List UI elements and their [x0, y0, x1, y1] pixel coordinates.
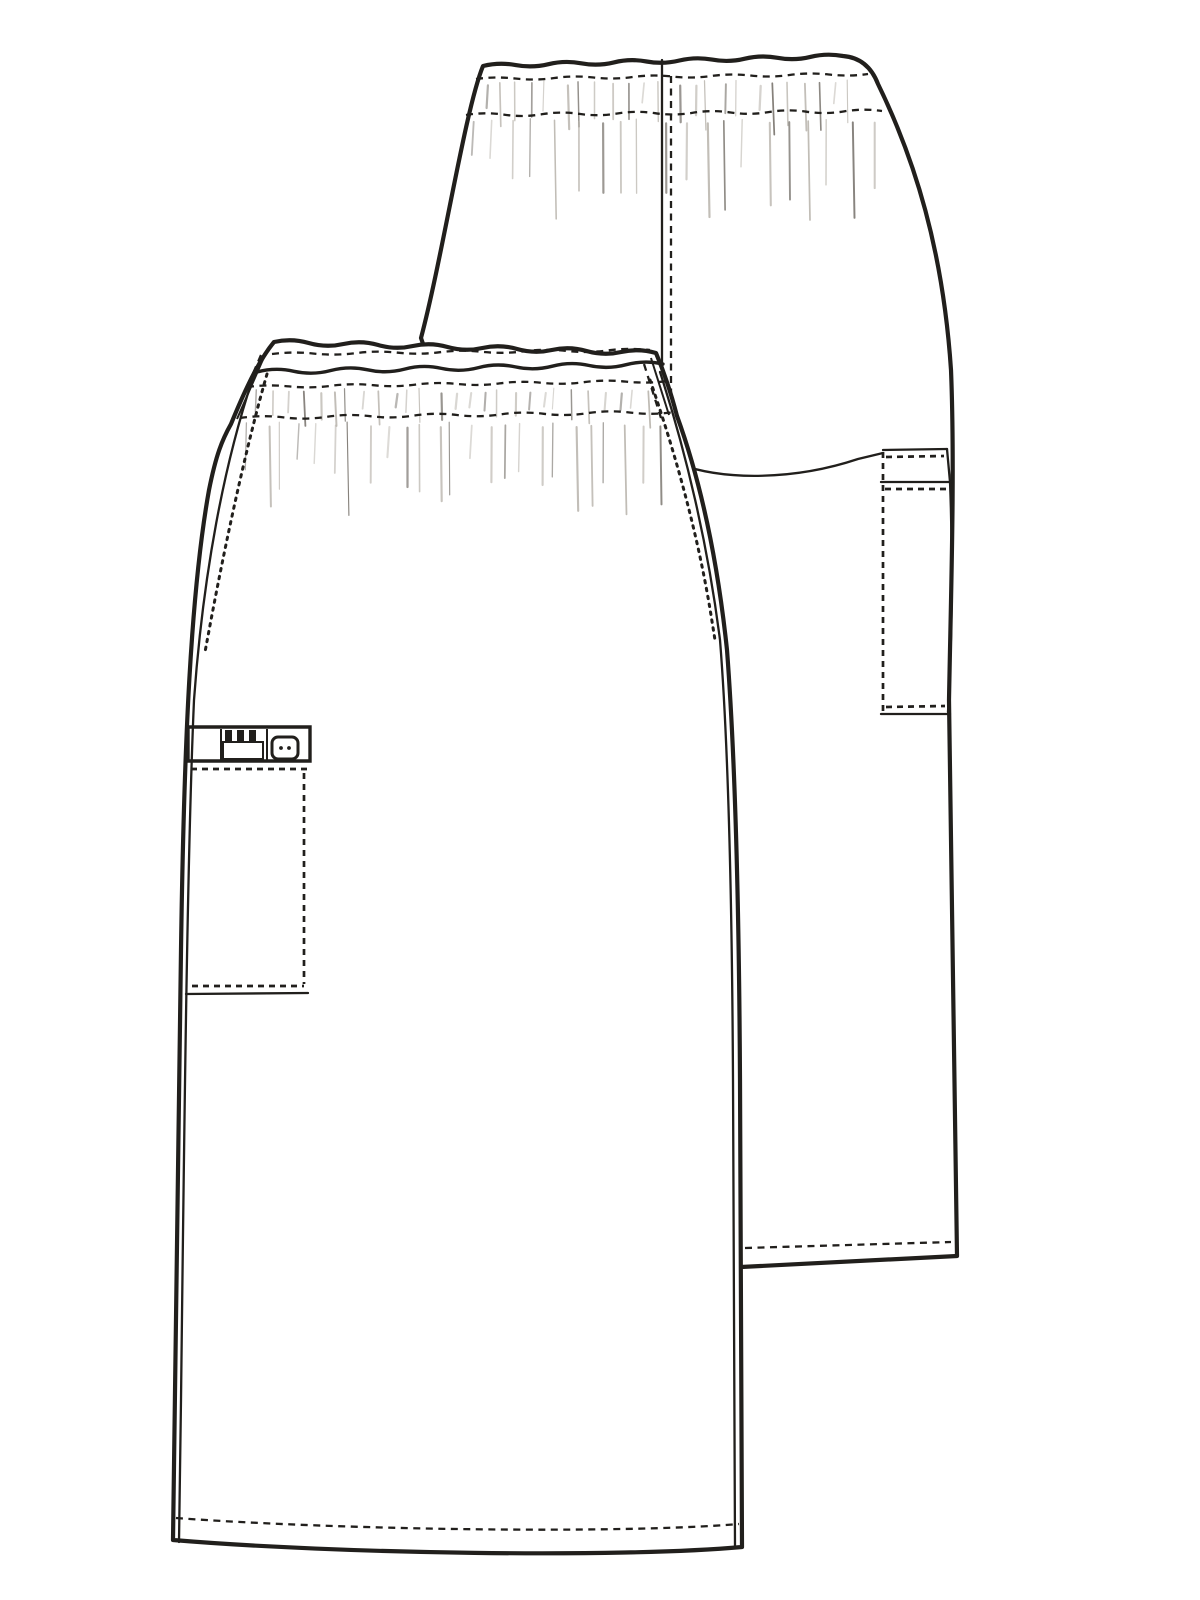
gather-stroke	[605, 393, 606, 410]
button-hole-right	[287, 746, 291, 750]
gather-stroke	[787, 82, 788, 125]
front-view-sketch	[173, 340, 742, 1553]
gather-stroke	[406, 390, 407, 412]
front-pocket-bottom-edge	[186, 993, 308, 994]
gather-stroke	[789, 122, 790, 200]
gather-stroke	[255, 390, 256, 412]
gather-stroke	[487, 85, 488, 108]
gather-stroke	[660, 426, 661, 504]
gather-stroke	[687, 123, 688, 179]
pocket-button-icon	[272, 737, 298, 759]
gather-stroke	[335, 425, 336, 473]
gather-stroke	[530, 119, 531, 177]
gather-stroke	[500, 83, 501, 127]
gather-stroke	[442, 393, 443, 420]
gather-stroke	[847, 80, 848, 123]
gather-stroke	[725, 84, 726, 113]
gather-stroke	[513, 121, 514, 179]
instrument-loop-tick-1	[225, 730, 232, 741]
back-pocket-band-top	[883, 449, 947, 450]
gather-stroke	[571, 390, 572, 420]
gather-stroke	[621, 394, 622, 410]
gather-stroke	[552, 423, 553, 477]
gather-stroke	[485, 393, 486, 411]
instrument-loop-tick-2	[237, 730, 244, 741]
gather-stroke	[568, 86, 569, 130]
gather-stroke	[578, 82, 579, 127]
instrument-loop-tick-3	[249, 730, 256, 741]
gather-stroke	[770, 123, 771, 206]
gather-stroke	[588, 391, 589, 423]
sketch-stage	[0, 0, 1200, 1600]
gather-stroke	[449, 422, 450, 495]
gather-stroke	[288, 392, 289, 413]
garment-flat-sketch	[0, 0, 1200, 1600]
gather-stroke	[505, 425, 506, 478]
gather-stroke	[529, 393, 530, 410]
gather-stroke	[270, 427, 271, 507]
gather-stroke	[456, 394, 458, 409]
gather-stroke	[760, 86, 761, 110]
gather-stroke	[519, 424, 520, 472]
gather-stroke	[680, 86, 681, 123]
front-skirt-outline	[173, 340, 742, 1553]
gather-stroke	[591, 426, 592, 506]
gather-stroke	[441, 427, 442, 501]
button-hole-left	[279, 746, 283, 750]
